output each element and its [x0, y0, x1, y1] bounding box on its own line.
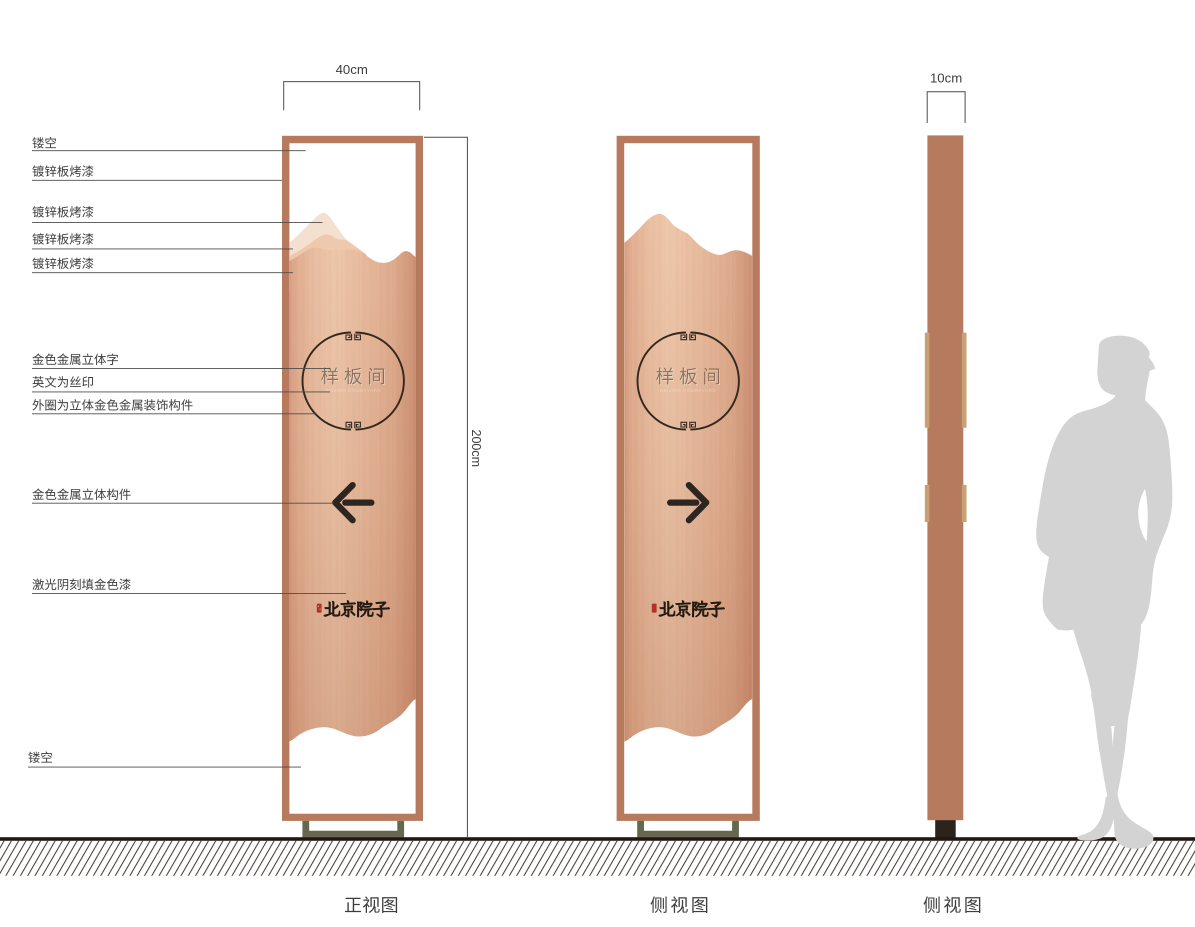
svg-text:200cm: 200cm [469, 430, 483, 468]
svg-text:40cm: 40cm [336, 62, 368, 77]
svg-text:BEIJING COURTYARD: BEIJING COURTYARD [325, 388, 381, 393]
svg-text:10cm: 10cm [930, 71, 962, 86]
svg-text:BEIJING COURTYARD: BEIJING COURTYARD [660, 388, 716, 393]
